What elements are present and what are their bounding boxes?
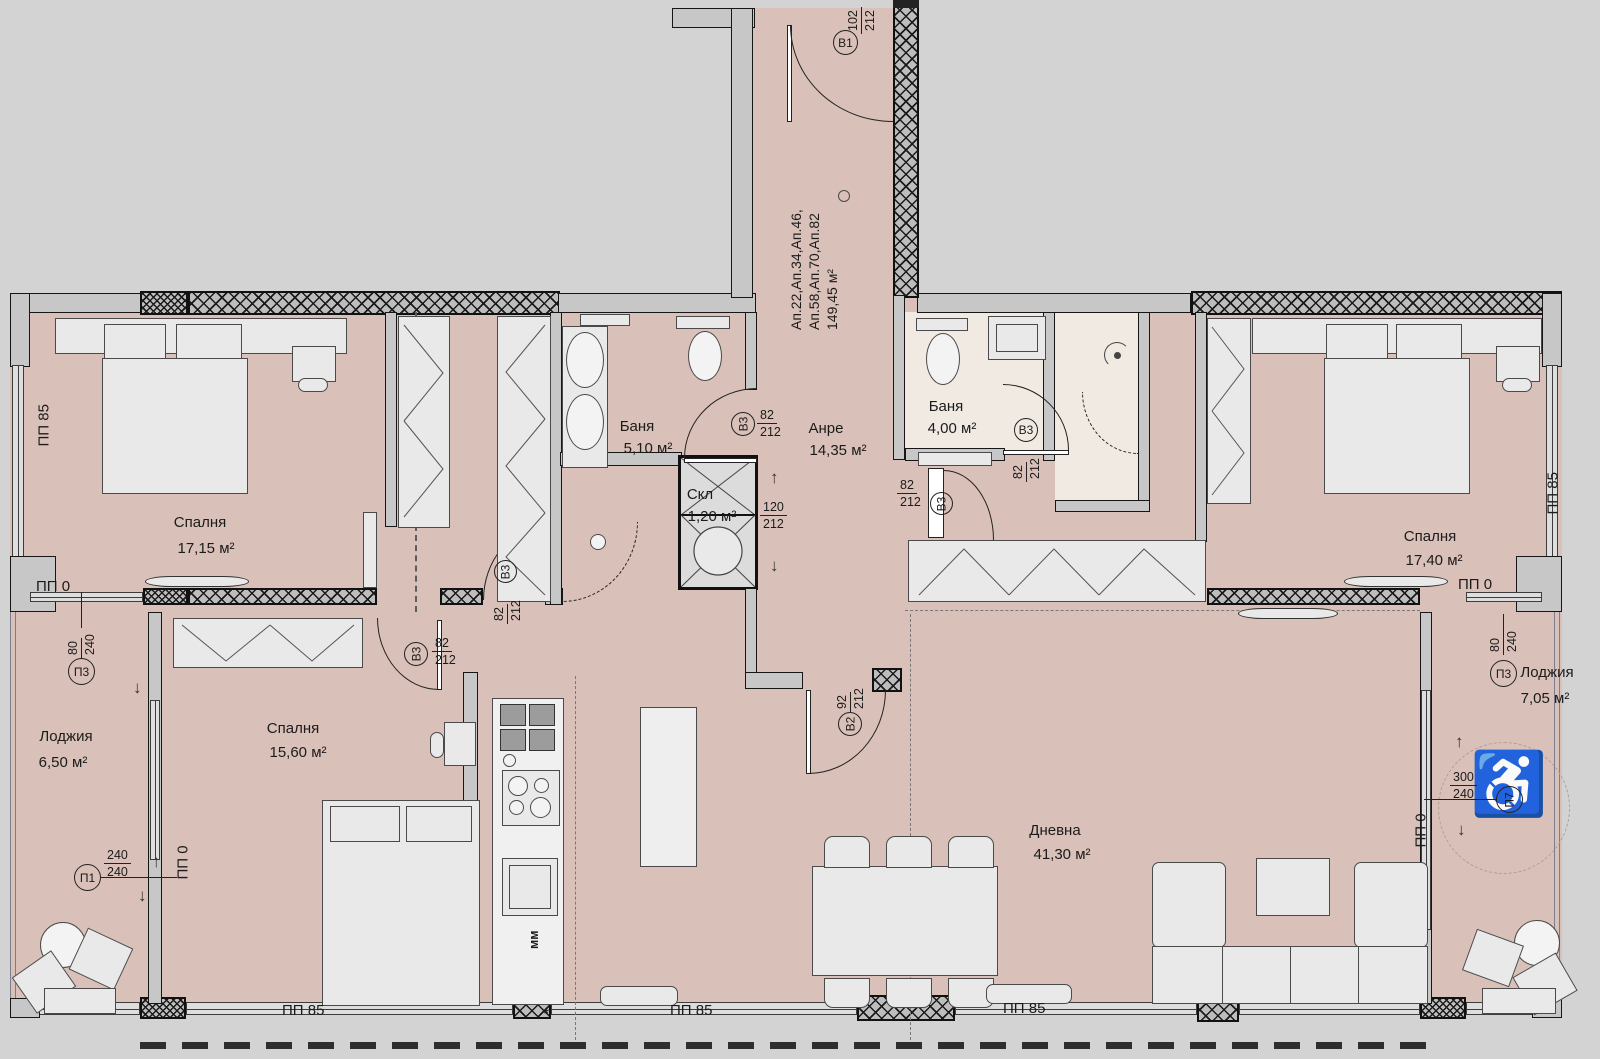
wall-top-left-hatch [188,291,560,315]
pillow-bedroomL-2 [176,324,242,360]
door-marker-hall: B3 [930,492,953,515]
door-marker-bathS: B3 [731,412,755,436]
p7-circle: П7 [1496,786,1523,813]
wall-b2-left [745,672,803,689]
wardrobe-bedroomR [1207,318,1251,504]
sill-lens-bedroomR [1344,576,1448,587]
shower-dot [1114,352,1121,359]
room-label-loggiaL: Лоджия [39,728,92,745]
wardrobe-bedroomM [173,618,363,668]
p1-dims: 240240 [104,848,131,879]
pp85-bedroomL: ПП 85 [36,395,53,447]
room-area-loggiaR: 7,05 м² [1521,690,1570,707]
room-area-closet: 1,20 м² [688,508,737,525]
armchair-left [1152,862,1226,948]
towel-rail-bathS [580,314,630,326]
wall-right-top-block [1542,293,1562,367]
chair-bedroomM [430,732,444,758]
p3L-circle: П3 [68,658,95,685]
p3L-dims: 80240 [66,622,96,658]
sink-bathS-2 [566,394,604,450]
door-leaf-bath-small [684,458,757,463]
room-area-hallway: 14,35 м² [809,442,866,459]
pillow-bedroomM-1 [330,806,400,842]
kitchen-knob [503,754,516,767]
stove-cell-1 [500,704,526,726]
room-label-living: Дневна [1029,822,1080,839]
door-dim-hall: 82212 [897,478,924,509]
wardrobe-corridor-left-marks [399,317,449,527]
wardrobe-bedroomR-marks [1208,319,1250,503]
kitchen-oven-inner [509,865,551,909]
floor-plan: ♿ Спалня 17,15 м² Баня 5,10 м² Анре 14,3… [0,0,1600,1059]
dining-chair-3 [948,836,994,868]
p3R-circle: П3 [1490,660,1517,687]
wall-shower-right [1138,312,1150,512]
towel-rail-bathM [918,452,992,466]
bench-loggiaL [44,988,116,1014]
kitchen-stove-grid [500,704,556,752]
sofa-seam-1 [1222,946,1223,1004]
pp0-bedroomM: ПП 0 [175,838,192,880]
bed-bedroomR [1324,358,1470,494]
window-bedroom-left [12,365,24,557]
wall-corridor-left [731,8,753,298]
burner-3 [509,800,524,815]
dining-chair-2 [886,836,932,868]
wall-junction-top [893,0,919,8]
pp85-bottom-1: ПП 85 [282,1002,324,1019]
axis-kitchen [575,676,576,1040]
p3R-dims: 80240 [1488,619,1518,655]
wall-div-fine [143,588,188,605]
sink-bathS-1 [566,332,604,388]
wc-bowl-bathS [688,331,722,381]
wall-top-right-mid [917,293,1191,313]
wc-tank-bathS [676,316,730,329]
room-area-loggiaL: 6,50 м² [39,754,88,771]
dining-table [812,866,998,976]
door-dim-bedroomM: 82212 [432,636,459,667]
burner-4 [530,797,551,818]
room-label-bathM: Баня [929,398,964,415]
chair-bedroomL [298,378,328,392]
desk-bedroomL [292,346,336,382]
shaft-arrow-up: ↑ [770,468,779,488]
chair-bedroomR [1502,378,1532,392]
pp0-bedroomR: ПП 0 [1458,576,1492,593]
pillar-b2-right [872,668,902,692]
wc-tank-bathM [916,318,968,331]
wall-top-bath [558,293,756,313]
pp85-bottom-3: ПП 85 [1003,1000,1045,1017]
stove-cell-3 [500,729,526,751]
wardrobe-hall-row [908,540,1206,602]
room-area-bedroomL: 17,15 м² [177,540,234,557]
desk-bedroomR [1496,346,1540,382]
wall-bedroomL-right [385,312,397,527]
p7-arrow-up: ↑ [1455,732,1464,752]
wardrobe-corridor-right-marks [498,317,550,601]
radiator-living-1 [600,986,678,1006]
axis-corridor-open [905,610,1420,611]
peephole-dot [838,190,850,202]
wall-div-hatch-1 [188,588,377,605]
door-marker-bathM: B3 [1014,418,1038,442]
pillow-bedroomR-2 [1396,324,1462,360]
pp0-loggiaR: ПП 0 [1413,806,1430,848]
door-marker-bedroomM: B3 [404,642,428,666]
door-dim-b2: 92212 [835,678,865,712]
dining-chair-4 [824,978,870,1008]
pp85-bedroomR: ПП 85 [1545,463,1562,515]
wc-bowl-bathM [926,333,960,385]
window-loggiaL [150,700,160,860]
p7-arrow-down: ↓ [1457,820,1466,840]
burner-1 [508,776,528,796]
loggiaL-arrow-3: ↑ [152,852,161,872]
dining-chair-5 [886,978,932,1008]
loggiaL-arrow-2: ↓ [138,886,147,906]
pillow-bedroomR-1 [1326,324,1388,360]
shaft-arrow-down: ↓ [770,556,779,576]
door-dim-bathM: 82212 [1011,448,1041,482]
room-label-bedroomM: Спалня [267,720,319,737]
sofa-seam-2 [1290,946,1291,1004]
sofa-seam-3 [1358,946,1359,1004]
wall-top-right-hatch [1191,291,1562,315]
desk-bedroomM [444,722,476,766]
shaft-dim: 120212 [760,500,787,531]
kitchen-island [640,707,697,867]
door-marker-corridor: B3 [494,560,517,583]
room-area-bathS: 5,10 м² [624,440,673,457]
dining-chair-1 [824,836,870,868]
room-area-living: 41,30 м² [1033,846,1090,863]
room-area-bedroomR: 17,40 м² [1405,552,1462,569]
kitchen-mm-label: мм [527,925,541,949]
window-bedroom-right [1546,365,1558,557]
wall-div-hatch-2 [440,588,483,605]
door-marker-b2: B2 [838,712,862,736]
wall-corridor-right-hatch [893,6,919,298]
stove-cell-4 [529,729,555,751]
room-label-closet: Скл [687,486,713,503]
sill-lens-bedroomL [145,576,249,587]
door-dim-b1: 102212 [846,0,876,34]
wall-hall-right [893,295,905,460]
wall-bathS-right-top [745,312,757,390]
pillow-bedroomL-1 [104,324,166,360]
radiator-bedroomL [363,512,377,588]
drain-bathS [590,534,606,550]
bed-bedroomL [102,358,248,494]
kitchen-star: * [543,1006,549,1024]
p7-dims: 300240 [1450,770,1477,801]
wardrobe-bedroomM-marks [174,619,362,667]
wall-left-top-block [10,293,30,367]
axis-living [910,614,911,1040]
loggiaL-arrow-1: ↓ [133,678,142,698]
room-area-bathM: 4,00 м² [928,420,977,437]
stove-cell-2 [529,704,555,726]
parapet-dashed-line [140,1042,1432,1049]
room-label-hallway: Анре [809,420,844,437]
glazing-loggia-left [10,612,16,1008]
wardrobe-corridor-left [398,316,450,528]
door-dim-corridor: 82212 [492,590,522,624]
apartment-info-line2: Ап.58,Ап.70,Ап.82 [805,60,823,330]
apartment-info-line1: Ап.22,Ап.34,Ап.46, [787,60,805,330]
room-label-loggiaR: Лоджия [1520,664,1573,681]
room-label-bedroomR: Спалня [1404,528,1456,545]
sink-bathM-basin [996,324,1038,352]
room-area-bedroomM: 15,60 м² [269,744,326,761]
wall-bedroomR-left [1195,312,1207,542]
door-dim-bathS: 82212 [757,408,784,439]
burner-2 [534,778,549,793]
armchair-right [1354,862,1428,948]
wardrobe-hall-row-marks [909,541,1205,601]
pillar-bottom-1 [140,997,186,1019]
wall-bedroomR-bottom [1207,588,1420,605]
coffee-table [1256,858,1330,916]
window-bedroomR-loggia [1466,592,1542,602]
pp85-bottom-2: ПП 85 [670,1002,712,1019]
pillow-bedroomM-2 [406,806,472,842]
pp0-bedroomL: ПП 0 [36,578,70,595]
bench-loggiaR [1482,988,1556,1014]
sill-lens-living [1238,608,1338,619]
room-label-bathS: Баня [620,418,655,435]
wall-top-left-pillar [140,291,188,315]
apartment-info: Ап.22,Ап.34,Ап.46, Ап.58,Ап.70,Ап.82 149… [787,60,843,330]
p1-circle: П1 [74,864,101,891]
wall-right-mid-block [1516,556,1562,612]
wall-shower-bottom [1055,500,1150,512]
room-label-bedroomL: Спалня [174,514,226,531]
